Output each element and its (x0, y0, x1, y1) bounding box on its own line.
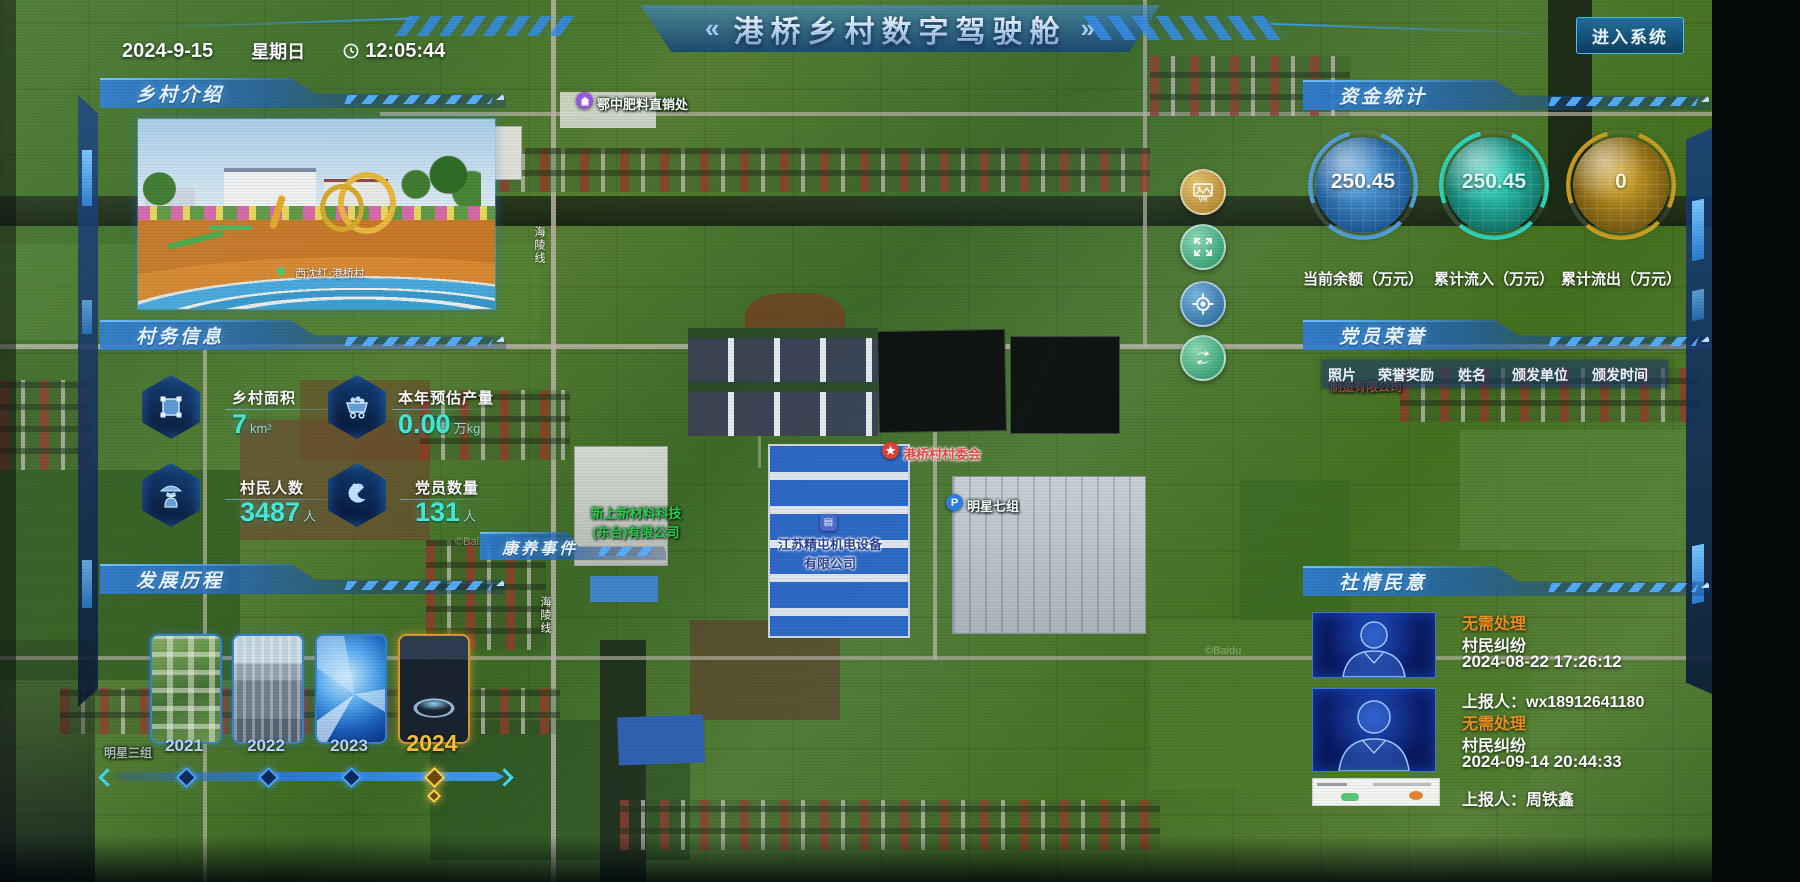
person-hologram-icon (1313, 613, 1435, 677)
map-field (1240, 480, 1350, 620)
left-frame-notch (82, 560, 92, 608)
dashboard: 鄂中肥料直销处 港桥村村委会 ▤ 江苏精屯机电设备 有限公司 新上新材料科技 (… (0, 0, 1800, 882)
stat-label: 村民人数 (240, 477, 304, 498)
sentiment-status: 无需处理 (1462, 610, 1526, 634)
health-events-title: 康养事件 (502, 535, 578, 559)
photo-flowerbed (138, 206, 495, 219)
photo-trees (388, 146, 481, 211)
photo-bench (209, 225, 252, 230)
parking-glyph: P (951, 497, 958, 509)
shop-marker-icon[interactable] (576, 92, 593, 109)
dev-year-2024[interactable]: 2024 (398, 730, 466, 757)
sentiment-reporter: 上报人：wx18912641180 (1462, 688, 1644, 712)
thumb-line (1317, 783, 1347, 786)
building-glyph: ▤ (824, 517, 833, 528)
poi-company-line2: 有限公司 (770, 553, 890, 572)
photo-caption: 西沈红·港桥村 (295, 265, 365, 281)
photo-ring-sculpture (320, 184, 364, 232)
stat-unit: 万kg (454, 421, 481, 436)
header-date: 2024-9-15 (122, 40, 213, 63)
banner-stripes-right (1084, 16, 1289, 40)
sentiment-datetime: 2024-09-14 20:44:33 (1462, 752, 1622, 772)
dev-year-2023[interactable]: 2023 (315, 736, 383, 756)
vr-image-icon: VR (1192, 182, 1214, 202)
right-frame-notch (1692, 289, 1704, 322)
map-building-blue (617, 715, 705, 766)
honors-col-name: 姓名 (1458, 365, 1486, 385)
stat-value: 3487人 (240, 497, 316, 528)
panel-title: 村务信息 (136, 322, 224, 349)
fullscreen-icon (1192, 236, 1214, 258)
enter-system-button[interactable]: 进入系统 (1576, 17, 1684, 54)
map-vr-panorama-button[interactable]: VR (1180, 169, 1226, 215)
dev-year-2022[interactable]: 2022 (232, 736, 300, 756)
sentiment-avatar (1312, 688, 1436, 772)
gauge-value: 0 (1573, 170, 1669, 194)
locate-crosshair-icon (1192, 293, 1214, 315)
poi-materials-line2: (东台)有限公司 (576, 522, 696, 541)
poi-label-fertilizer-shop[interactable]: 鄂中肥料直销处 (597, 94, 688, 113)
stat-number: 3487 (240, 497, 300, 527)
map-locate-button[interactable] (1180, 281, 1226, 327)
person-hologram-icon (1313, 689, 1435, 771)
map-villa-estate (688, 328, 878, 436)
map-village (420, 148, 1150, 192)
header-stripes (1548, 583, 1698, 592)
poi-label-company[interactable]: 江苏精屯机电设备 有限公司 (770, 534, 890, 572)
area-icon (157, 393, 185, 421)
poi-materials-line1: 新上新材料科技 (576, 503, 696, 522)
stat-value: 7km² (232, 409, 272, 440)
stat-value: 0.00万kg (398, 409, 480, 440)
baidu-watermark: ©Baidu (1205, 645, 1241, 657)
dev-thumb-2024[interactable] (398, 634, 470, 744)
header-stripes (344, 337, 493, 346)
photo-trees (137, 157, 202, 210)
dev-thumb-2021[interactable] (150, 634, 222, 744)
map-village (60, 688, 560, 734)
datetime-group: 2024-9-15 星期日 12:05:44 (122, 38, 445, 64)
dev-thumb-2022[interactable] (232, 634, 304, 744)
header-stripes (598, 547, 653, 556)
header-time: 12:05:44 (365, 40, 445, 63)
stat-number: 0.00 (398, 409, 451, 439)
map-pond (1010, 336, 1120, 434)
gauge-label-outflow: 累计流出（万元） (1541, 268, 1701, 289)
intro-photo[interactable]: 西沈红·港桥村 (137, 118, 496, 310)
sentiment-status: 无需处理 (1462, 710, 1526, 734)
poi-label-mingxing-3: 明星三组 (104, 744, 152, 761)
stat-unit: km² (250, 421, 272, 436)
map-pool (590, 576, 658, 602)
poi-label-village-committee[interactable]: 港桥村村委会 (903, 444, 981, 463)
stat-number: 7 (232, 409, 247, 439)
panel-title: 党员荣誉 (1339, 322, 1427, 349)
committee-star-marker-icon[interactable] (882, 442, 899, 459)
panel-title: 乡村介绍 (136, 80, 224, 107)
cart-icon (342, 393, 372, 421)
thumb-dot (1341, 793, 1359, 801)
gauge-value: 250.45 (1315, 170, 1411, 194)
honors-table-header: 照片 荣誉奖励 姓名 颁发单位 颁发时间 (1322, 360, 1668, 388)
right-black-bar (1712, 0, 1800, 882)
poi-label-mingxing-7[interactable]: 明星七组 (967, 496, 1019, 515)
left-frame-notch (82, 150, 92, 206)
header-stripes (344, 581, 493, 590)
switch-arrows-icon (1191, 348, 1215, 368)
honors-col-date: 颁发时间 (1592, 365, 1648, 385)
sentiment-reporter: 上报人：周铁鑫 (1462, 786, 1574, 810)
photo-building (224, 172, 317, 210)
stat-label: 乡村面积 (232, 387, 296, 408)
sentiment-thumbnail-partial[interactable] (1312, 778, 1440, 806)
stat-unit: 人 (303, 509, 316, 524)
panel-title: 社情民意 (1339, 568, 1427, 595)
thumb-line (1373, 783, 1431, 786)
sentiment-datetime: 2024-08-22 17:26:12 (1462, 652, 1622, 672)
map-village (620, 800, 1160, 850)
dev-year-2021[interactable]: 2021 (150, 736, 218, 756)
bottom-left-shade (0, 640, 95, 882)
honors-col-photo: 照片 (1328, 365, 1356, 385)
map-layer-switch-button[interactable] (1180, 335, 1226, 381)
villager-icon (157, 481, 185, 509)
map-field (1460, 430, 1712, 550)
page-title: 港桥乡村数字驾驶舱 (734, 7, 1067, 51)
clock-icon (343, 43, 359, 59)
header-stripes (1548, 97, 1698, 106)
right-frame-notch (1692, 199, 1704, 262)
company-marker-icon[interactable]: ▤ (820, 514, 837, 531)
title-chevron-left: « (705, 13, 719, 44)
stat-unit: 人 (463, 509, 476, 524)
funds-gauge-inflow: 250.45 (1446, 137, 1542, 233)
stat-label: 党员数量 (415, 477, 479, 498)
stat-number: 131 (415, 497, 460, 527)
sentiment-avatar (1312, 612, 1436, 678)
map-fullscreen-button[interactable] (1180, 224, 1226, 270)
funds-gauge-balance: 250.45 (1315, 137, 1411, 233)
thumb-dot (1409, 791, 1423, 800)
map-pond (877, 329, 1007, 433)
svg-text:VR: VR (1198, 197, 1207, 203)
poi-label-materials-company[interactable]: 新上新材料科技 (东台)有限公司 (576, 503, 696, 541)
panel-title: 资金统计 (1339, 82, 1427, 109)
header-stripes (344, 95, 493, 104)
title-banner: « 港桥乡村数字驾驶舱 » (640, 5, 1160, 52)
stat-label: 本年预估产量 (398, 387, 494, 408)
timeline-slider[interactable] (112, 772, 504, 781)
funds-gauge-outflow: 0 (1573, 137, 1669, 233)
honors-col-award: 荣誉奖励 (1378, 365, 1434, 385)
stat-value: 131人 (415, 497, 476, 528)
poi-company-line1: 江苏精屯机电设备 (770, 534, 890, 553)
parking-marker-icon[interactable]: P (946, 494, 963, 511)
gauge-value: 250.45 (1446, 170, 1542, 194)
dev-thumb-2023[interactable] (315, 634, 387, 744)
map-road (203, 340, 207, 882)
header-weekday: 星期日 (251, 38, 305, 64)
header-stripes (1548, 337, 1698, 346)
honors-col-issuer: 颁发单位 (1512, 365, 1568, 385)
road-label: 海陵线 (531, 226, 547, 265)
left-frame-notch (82, 300, 92, 334)
party-icon (343, 481, 371, 509)
banner-stripes-left (395, 16, 577, 36)
road-label: 海陵线 (537, 596, 553, 635)
panel-title: 发展历程 (136, 566, 224, 593)
